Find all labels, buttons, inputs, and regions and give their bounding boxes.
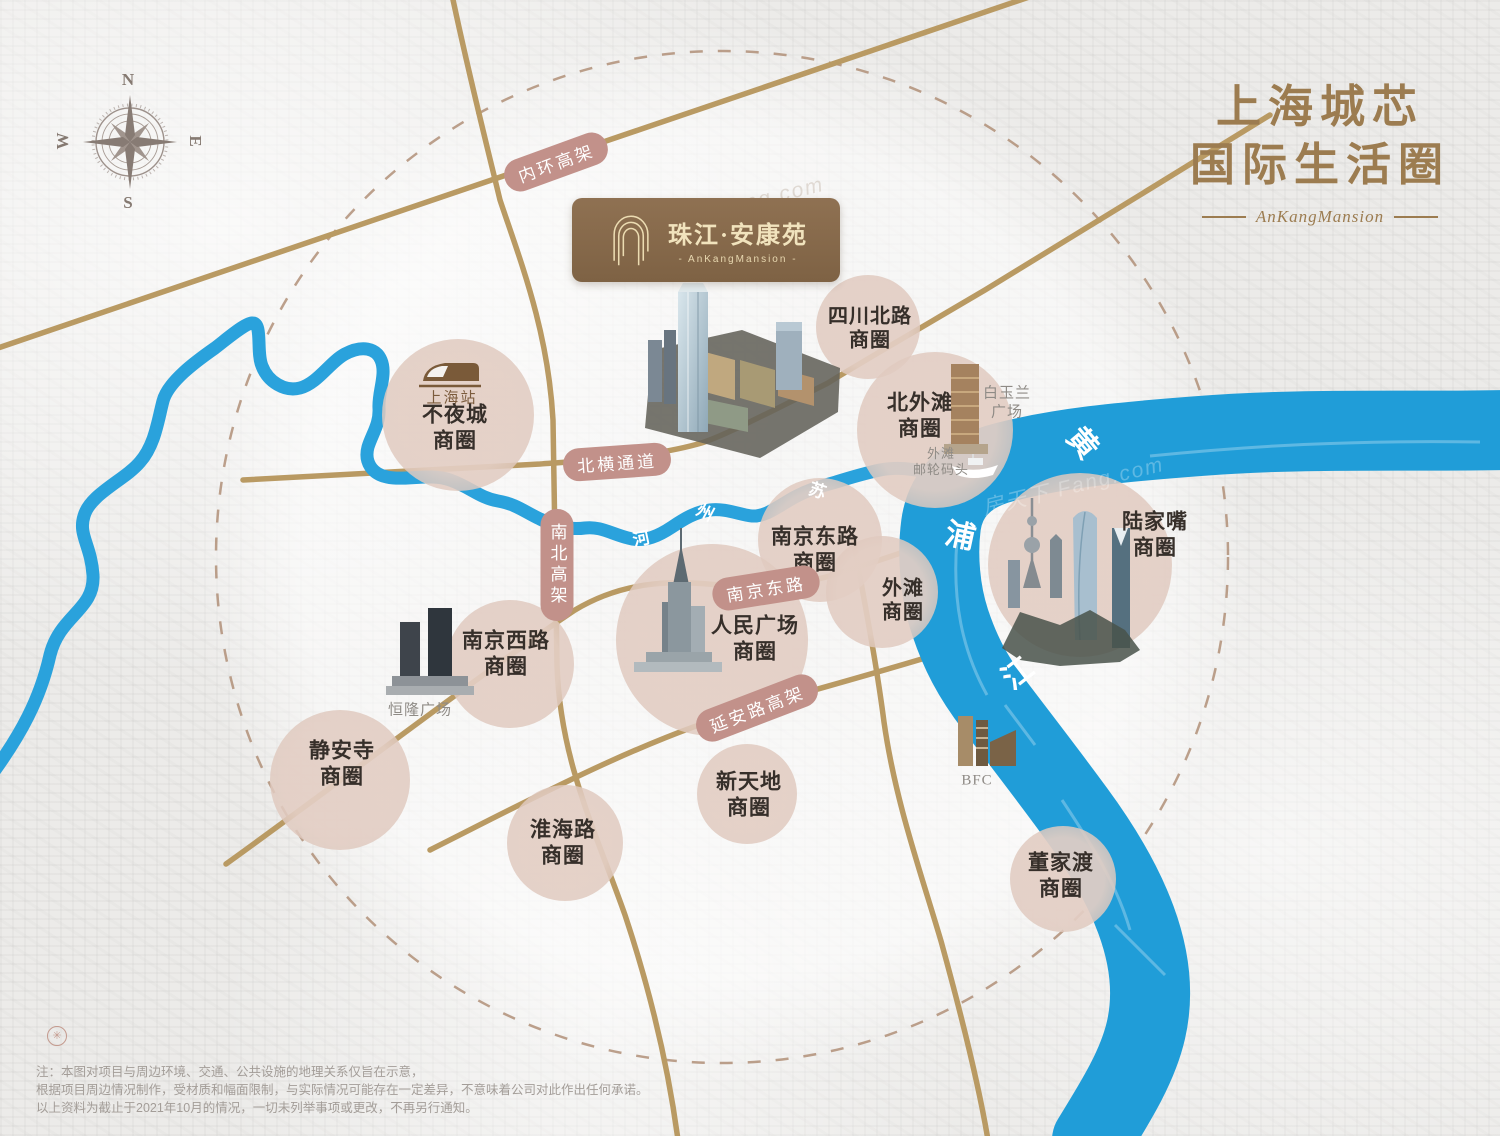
landmark-label-plaza66: 恒隆广场 (388, 702, 452, 721)
district-label-jingansi: 静安寺 商圈 (309, 738, 375, 789)
district-label-waitan: 外滩 商圈 (882, 577, 924, 626)
project-name-en: - AnKangMansion - (668, 254, 808, 265)
compass-north-label: N (122, 70, 134, 90)
location-map: N S W E 四川北路 商圈 上海站 不夜城 商圈 北外滩 商圈 陆家嘴 商圈… (0, 0, 1500, 1136)
map-title-block: 上海城芯 国际生活圈 AnKangMansion (1155, 78, 1485, 227)
compass-south-label: S (123, 193, 132, 213)
map-title-line1: 上海城芯 (1155, 78, 1485, 136)
landmark-label-white-magnolia: 白玉兰 广场 (983, 384, 1031, 422)
lujiazui-buildings (1002, 498, 1140, 666)
district-label-buyecheng: 不夜城 商圈 (422, 402, 488, 453)
title-dash-left (1202, 216, 1246, 218)
title-dash-right (1394, 216, 1438, 218)
project-site-building (645, 283, 840, 458)
map-title-line2: 国际生活圈 (1155, 136, 1485, 194)
district-label-nanjingxilu: 南京西路 商圈 (462, 628, 550, 679)
map-subtitle: AnKangMansion (1256, 207, 1384, 227)
plaza66-building (386, 608, 474, 695)
landmark-label-bfc: BFC (961, 772, 992, 791)
district-label-renminguangchang: 人民广场 商圈 (711, 613, 799, 664)
disclaimer-line: 注：本图对项目与周边环境、交通、公共设施的地理关系仅旨在示意， (36, 1063, 649, 1081)
disclaimer-line: 以上资料为截止于2021年10月的情况，一切未列举事项或更改，不再另行通知。 (36, 1099, 649, 1117)
compass-west-label: W (53, 133, 73, 150)
district-label-xintiandi: 新天地 商圈 (716, 769, 782, 820)
landmark-label-cruise-terminal: 外滩 邮轮码头 (913, 446, 969, 479)
district-label-huaihailu: 淮海路 商圈 (530, 817, 596, 868)
road-label-nanbei: 南北高架 (541, 509, 574, 621)
disclaimer-line: 根据项目周边情况制作，受材质和幅面限制，与实际情况可能存在一定差异，不意味着公司… (36, 1081, 649, 1099)
district-label-beiwaitan: 北外滩 商圈 (887, 390, 953, 441)
arch-gate-icon (608, 210, 654, 270)
compass-east-label: E (185, 135, 205, 146)
train-icon (419, 363, 481, 386)
project-name: 珠江·安康苑 (668, 215, 808, 250)
peoples-square-building (634, 528, 722, 672)
seal-icon: ✳ (47, 1026, 67, 1046)
bfc-building (958, 716, 1016, 766)
disclaimer-block: 注：本图对项目与周边环境、交通、公共设施的地理关系仅旨在示意， 根据项目周边情况… (36, 1063, 649, 1117)
project-logo-plate: 珠江·安康苑 - AnKangMansion - (572, 198, 840, 282)
district-label-dongjiadu: 董家渡 商圈 (1028, 850, 1094, 901)
district-label-sichuanbeilu: 四川北路 商圈 (828, 305, 912, 354)
compass-rose-icon (83, 95, 177, 189)
district-label-lujiazui: 陆家嘴 商圈 (1122, 509, 1188, 560)
